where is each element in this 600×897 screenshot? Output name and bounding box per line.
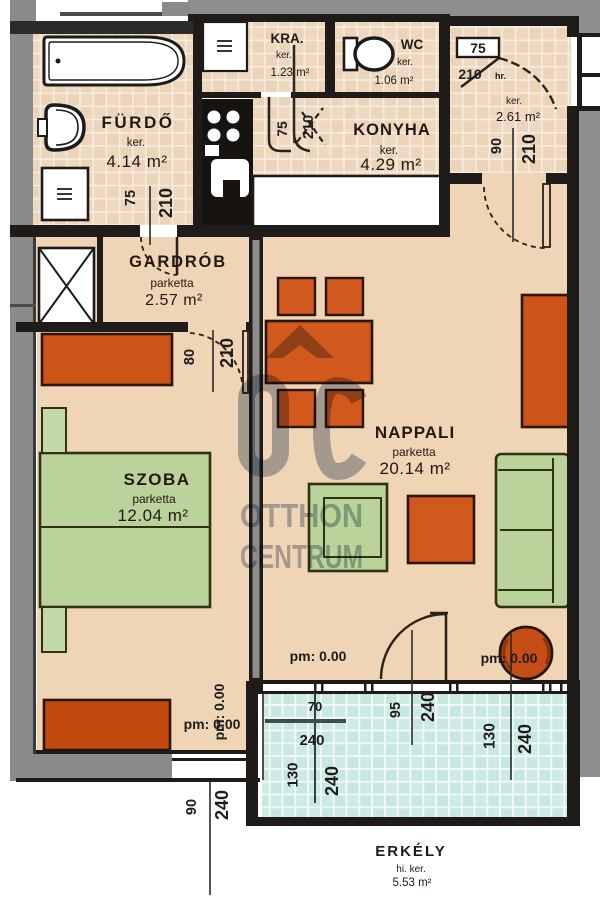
- svg-text:NAPPALI: NAPPALI: [375, 423, 455, 442]
- svg-text:210: 210: [301, 115, 317, 139]
- svg-text:75: 75: [274, 121, 290, 137]
- svg-text:240: 240: [515, 724, 535, 754]
- svg-text:210: 210: [458, 66, 482, 82]
- svg-text:70: 70: [308, 699, 322, 714]
- svg-text:ERKÉLY: ERKÉLY: [375, 843, 446, 860]
- svg-text:OTTHON: OTTHON: [240, 497, 363, 534]
- svg-text:210: 210: [519, 134, 539, 164]
- svg-text:ker.: ker.: [397, 57, 413, 68]
- svg-text:2.61 m²: 2.61 m²: [496, 109, 541, 124]
- svg-text:240: 240: [299, 732, 324, 749]
- svg-text:ker.: ker.: [127, 137, 146, 149]
- svg-text:130: 130: [482, 723, 499, 749]
- svg-text:parketta: parketta: [132, 492, 176, 506]
- svg-text:pm: 0.00: pm: 0.00: [481, 650, 538, 666]
- svg-text:80: 80: [182, 349, 198, 365]
- svg-text:GARDRÓB: GARDRÓB: [129, 252, 227, 271]
- svg-text:hi. ker.: hi. ker.: [396, 864, 425, 875]
- svg-text:90: 90: [489, 138, 505, 154]
- svg-text:1.06 m²: 1.06 m²: [375, 75, 414, 87]
- svg-text:parketta: parketta: [150, 276, 194, 290]
- svg-text:ker.: ker.: [276, 50, 292, 61]
- svg-text:75: 75: [123, 190, 139, 206]
- svg-text:20.14 m²: 20.14 m²: [379, 459, 450, 478]
- svg-text:FÜRDŐ: FÜRDŐ: [102, 113, 175, 132]
- svg-text:90: 90: [184, 799, 200, 815]
- svg-text:SZOBA: SZOBA: [124, 470, 191, 489]
- svg-text:240: 240: [212, 790, 232, 820]
- svg-text:210: 210: [217, 338, 237, 368]
- svg-text:210: 210: [156, 188, 176, 218]
- svg-text:4.29 m²: 4.29 m²: [360, 155, 421, 174]
- svg-text:CENTRUM: CENTRUM: [240, 538, 363, 575]
- svg-text:240: 240: [418, 692, 438, 722]
- svg-text:parketta: parketta: [392, 445, 436, 459]
- svg-text:pm: 0.00: pm: 0.00: [211, 683, 227, 740]
- svg-text:4.14 m²: 4.14 m²: [106, 152, 167, 171]
- svg-text:KONYHA: KONYHA: [353, 121, 431, 139]
- svg-text:12.04 m²: 12.04 m²: [117, 506, 188, 525]
- svg-text:130: 130: [285, 762, 302, 787]
- svg-text:pm: 0.00: pm: 0.00: [290, 648, 347, 664]
- svg-text:75: 75: [470, 40, 486, 56]
- svg-text:5.53 m²: 5.53 m²: [393, 877, 432, 889]
- svg-text:95: 95: [388, 702, 404, 718]
- svg-text:2.57 m²: 2.57 m²: [145, 292, 203, 309]
- svg-text:1.23 m²: 1.23 m²: [271, 67, 310, 79]
- svg-text:hr.: hr.: [495, 71, 506, 81]
- svg-text:WC: WC: [401, 37, 424, 52]
- svg-text:KRA.: KRA.: [271, 31, 304, 46]
- svg-text:ker.: ker.: [506, 96, 522, 107]
- svg-text:240: 240: [322, 766, 342, 796]
